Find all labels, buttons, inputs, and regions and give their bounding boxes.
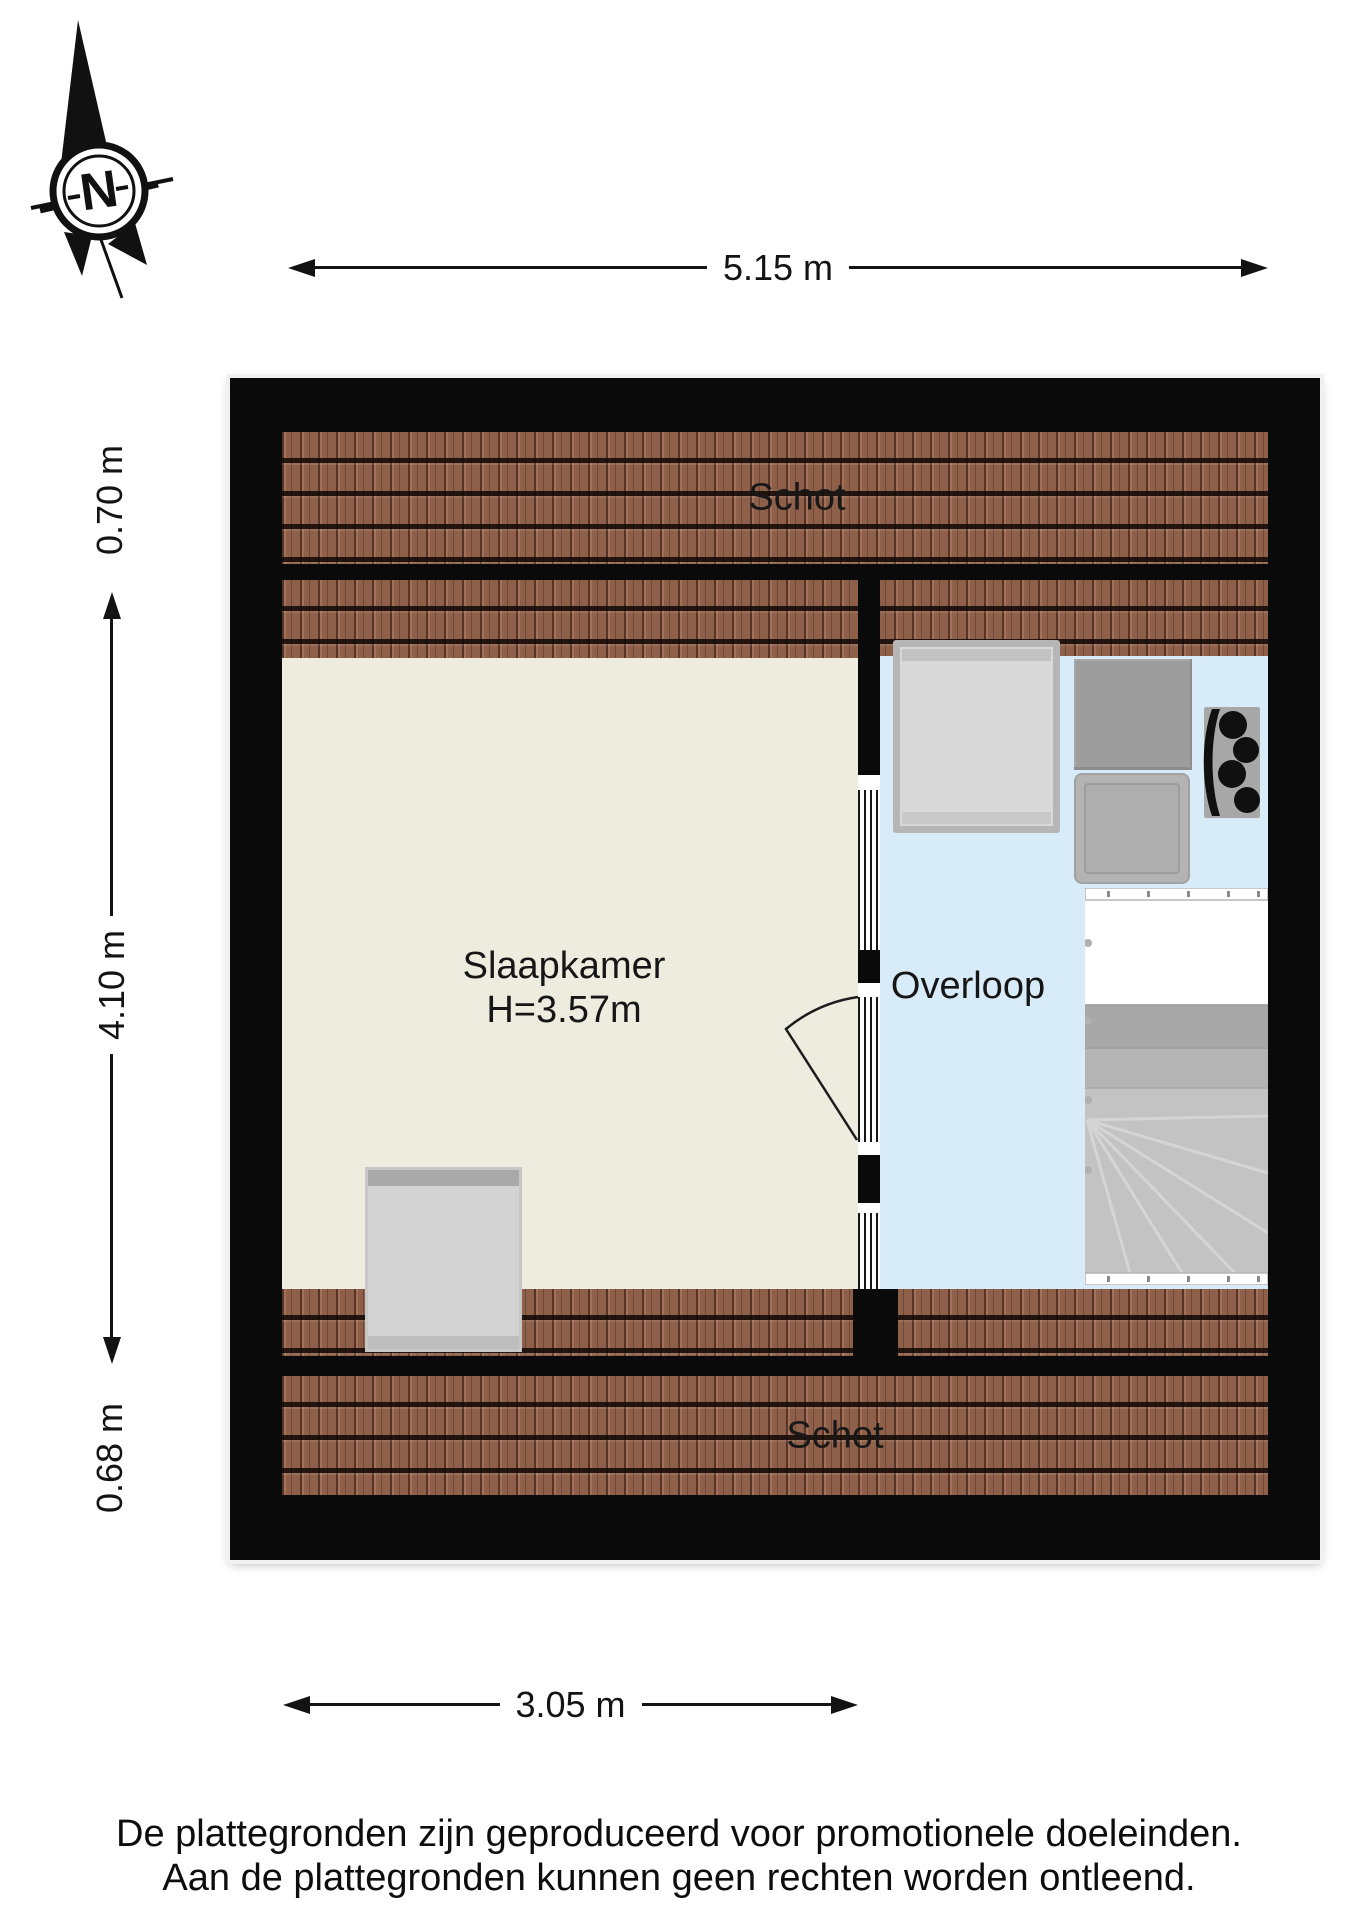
room-ceiling-height: H=3.57m [463,988,666,1032]
dormer-box [365,1167,522,1352]
dimension-strip-bottom-label: 0.68 m [89,1389,131,1527]
wardrobe [1074,659,1192,770]
floor-plan: Schot Schot [230,378,1320,1560]
bed [893,640,1060,833]
bed-footboard [902,812,1051,824]
dimension-total-width: 5.15 m [288,252,1268,284]
arrow-left-icon [288,259,315,277]
svg-text:N: N [76,160,121,223]
room-name: Overloop [891,964,1045,1008]
dormer-box-top [368,1170,519,1186]
arrow-up-icon [103,592,121,619]
dimension-room-depth-label: 4.10 m [91,916,133,1054]
floorplan-page: { "compass": { "label": "N" }, "dimensio… [0,0,1358,1920]
arrow-right-icon [1241,259,1268,277]
arrow-down-icon [103,1337,121,1364]
staircase [1085,888,1268,1285]
arrow-left-icon [283,1696,310,1714]
dimension-strip-top-label: 0.70 m [89,431,131,569]
bed-headboard [902,649,1051,661]
room-slaapkamer-label: Slaapkamer H=3.57m [463,944,666,1032]
dimension-bedroom-width-label: 3.05 m [499,1684,641,1726]
stove-icon [1200,707,1260,818]
cabinet [1074,773,1190,884]
dormer-box-bottom [368,1336,519,1349]
arrow-right-icon [831,1696,858,1714]
dimension-bedroom-width: 3.05 m [283,1689,858,1721]
disclaimer-line-1: De plattegronden zijn geproduceerd voor … [0,1812,1358,1856]
compass-north-icon: N [26,14,188,306]
cabinet-top [1084,783,1180,874]
room-overloop-label: Overloop [891,964,1045,1008]
disclaimer-line-2: Aan de plattegronden kunnen geen rechten… [0,1856,1358,1900]
disclaimer: De plattegronden zijn geproduceerd voor … [0,1812,1358,1900]
room-name: Slaapkamer [463,944,666,988]
dimension-total-width-label: 5.15 m [707,247,849,289]
